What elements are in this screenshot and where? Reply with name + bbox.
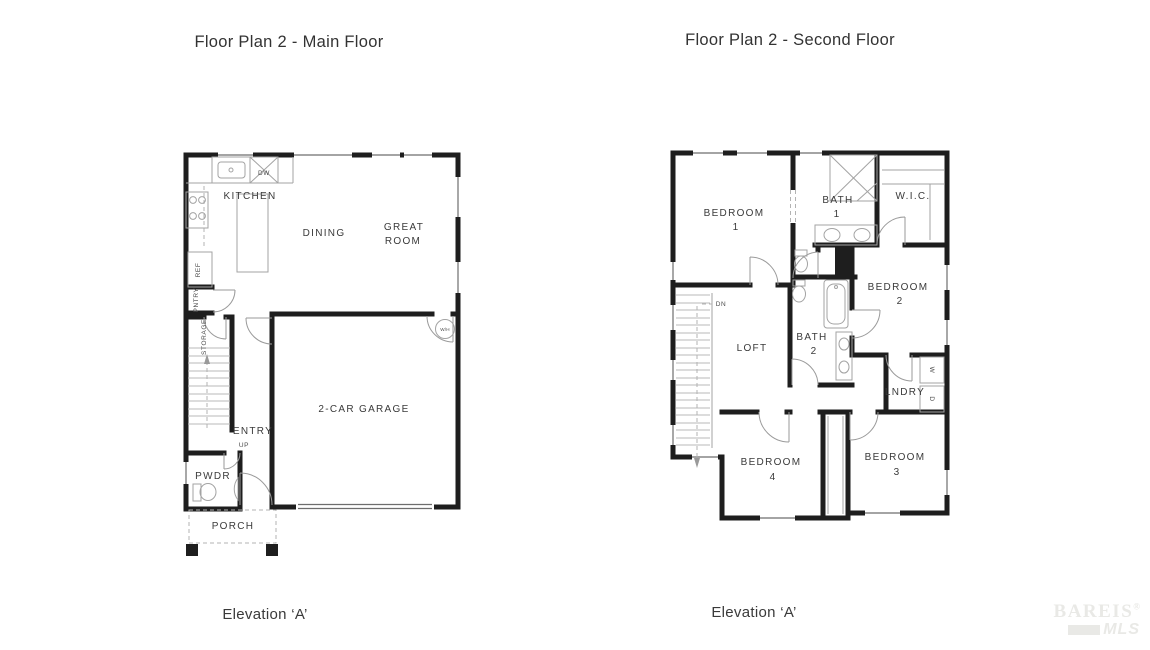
front-door bbox=[240, 473, 272, 505]
porch-label: PORCH bbox=[212, 521, 255, 532]
plumbing-chase bbox=[835, 247, 852, 277]
main-floor-walls bbox=[186, 155, 458, 509]
dining-label: DINING bbox=[303, 228, 346, 239]
second-stairs bbox=[676, 293, 712, 468]
hall-closet bbox=[828, 416, 843, 514]
bedroom4-label-2: 4 bbox=[770, 472, 777, 483]
floor-plan-page: Floor Plan 2 - Main Floor Floor Plan 2 -… bbox=[0, 0, 1150, 650]
wic-shelves bbox=[882, 170, 944, 240]
great-room-label-1: GREAT bbox=[384, 222, 424, 233]
bedroom2-door bbox=[852, 310, 880, 338]
loft-label: LOFT bbox=[737, 343, 768, 354]
water-heater: W/H bbox=[436, 320, 455, 339]
porch-post bbox=[266, 544, 278, 556]
porch-post bbox=[186, 544, 198, 556]
dryer-label: D bbox=[928, 396, 935, 401]
bedroom1-label-1: BEDROOM bbox=[704, 208, 765, 219]
bedroom1-label-2: 1 bbox=[733, 222, 740, 233]
bedroom3-label-2: 3 bbox=[894, 467, 901, 478]
porch bbox=[186, 510, 278, 556]
lndry-label: LNDRY bbox=[885, 387, 925, 398]
kitchen-fixtures bbox=[186, 157, 293, 287]
bath2-label-2: 2 bbox=[811, 346, 818, 357]
bedroom1-door bbox=[750, 257, 778, 285]
mls-brand: MLS bbox=[1103, 622, 1140, 638]
toilet bbox=[793, 286, 806, 302]
floor-plans-drawing: W/H KITCHEN DINING GREAT ROOM 2-CAR GARA… bbox=[0, 0, 1150, 650]
bath2-label-1: BATH bbox=[796, 332, 827, 343]
bath1-label-1: BATH bbox=[822, 195, 853, 206]
toilet bbox=[200, 484, 216, 501]
second-floor-plan: W D BEDROOM 1 BATH 1 W.I.C. BEDROO bbox=[669, 149, 952, 523]
storage-label: STORAGE bbox=[201, 319, 208, 355]
bath2-door bbox=[792, 359, 818, 385]
bareis-logo-text: BAREIS® bbox=[1054, 602, 1140, 621]
bath1-label-2: 1 bbox=[834, 209, 841, 220]
powder-sink bbox=[234, 478, 238, 500]
up-label: UP bbox=[239, 442, 249, 449]
laundry-machines: W D bbox=[920, 357, 944, 412]
main-floor-plan: W/H KITCHEN DINING GREAT ROOM 2-CAR GARA… bbox=[182, 151, 463, 557]
great-room-label-2: ROOM bbox=[385, 236, 421, 247]
pantry-door bbox=[213, 290, 235, 312]
kitchen-label: KITCHEN bbox=[224, 191, 277, 202]
kitchen-island bbox=[237, 194, 268, 272]
kitchen-sink bbox=[218, 162, 245, 178]
mls-logo-row: MLS bbox=[1054, 622, 1140, 638]
bedroom2-label-1: BEDROOM bbox=[868, 282, 929, 293]
garage-label: 2-CAR GARAGE bbox=[318, 404, 409, 415]
second-floor-elevation: Elevation ‘A’ bbox=[711, 604, 796, 621]
bedroom3-label-1: BEDROOM bbox=[865, 452, 926, 463]
bedroom4-label-1: BEDROOM bbox=[741, 457, 802, 468]
main-floor-doors bbox=[204, 290, 453, 505]
dn-label: DN bbox=[716, 301, 727, 308]
pntry-label: PNTRY bbox=[193, 287, 200, 312]
hall-door bbox=[246, 318, 272, 344]
toilet-tank bbox=[795, 250, 807, 256]
dw-label: DW bbox=[258, 170, 270, 177]
bareis-brand: BAREIS bbox=[1054, 601, 1134, 622]
main-stairs bbox=[188, 348, 230, 428]
laundry-door bbox=[886, 355, 912, 381]
bedroom4-door bbox=[759, 412, 789, 442]
pwdr-label: PWDR bbox=[195, 471, 231, 482]
entry-label: ENTRY bbox=[233, 426, 273, 437]
mls-logo-bar bbox=[1068, 625, 1100, 635]
bath2-fixtures bbox=[793, 280, 853, 380]
wic-label: W.I.C. bbox=[895, 191, 930, 202]
registered-mark: ® bbox=[1133, 602, 1140, 612]
bareis-mls-watermark: BAREIS® MLS bbox=[1054, 602, 1140, 638]
washer-label: W bbox=[928, 367, 935, 374]
water-heater-label: W/H bbox=[440, 327, 450, 332]
ref-label: REF bbox=[195, 263, 202, 278]
bedroom2-label-2: 2 bbox=[897, 296, 904, 307]
main-floor-elevation: Elevation ‘A’ bbox=[222, 606, 307, 623]
bedroom3-door bbox=[850, 412, 878, 440]
wic-door bbox=[877, 217, 905, 245]
